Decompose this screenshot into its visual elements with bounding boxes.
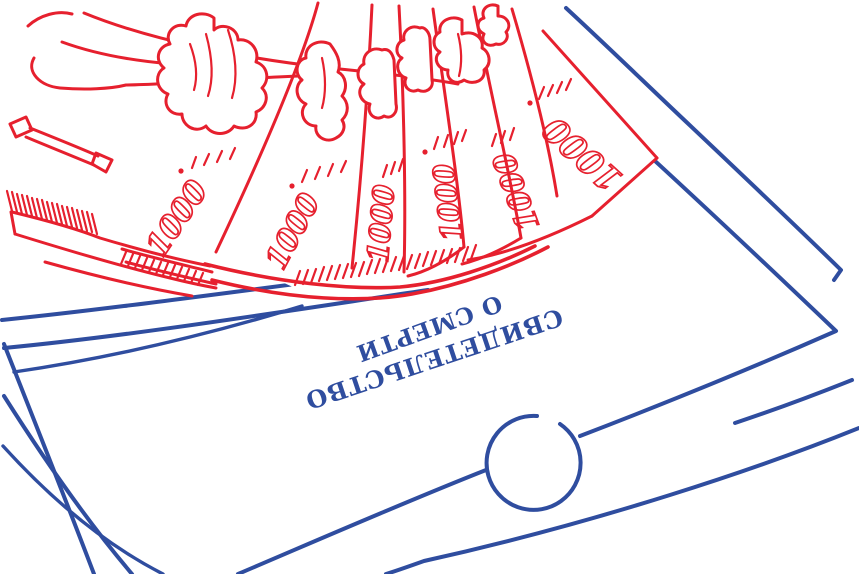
ribbon-diamond-right [92,153,112,172]
seal-circle [487,416,581,510]
note-1000-label: 1000 [139,174,216,264]
certificate-border-bottomright-outer2 [735,380,852,423]
certificate-border-left-inner1 [4,396,132,574]
sketch-illustration: СВИДЕТЕЛЬСТВО О СМЕРТИ [0,0,859,574]
dash-dot-6 [527,100,532,105]
dash-dot-2 [289,183,294,188]
note-1000-label: 1000 [361,183,402,263]
certificate-border-bottomright-inner [238,470,486,574]
sketch-canvas: СВИДЕТЕЛЬСТВО О СМЕРТИ [0,0,859,574]
dash-dot-4 [422,149,427,154]
certificate-title: СВИДЕТЕЛЬСТВО О СМЕРТИ [301,289,566,416]
dash-dot-1 [178,168,183,173]
note-swoosh-inner [62,42,172,64]
note-swoosh-arc [28,13,72,26]
ribbon-mark [10,117,112,172]
banknote-fan: 1000 1000 1000 1000 1000 1000 [6,3,659,299]
certificate-border-left-outer [4,344,94,574]
certificate-border-bottomright-outer [386,428,859,574]
dash-row-1 [192,148,235,168]
ribbon-diamond-left [10,117,32,137]
